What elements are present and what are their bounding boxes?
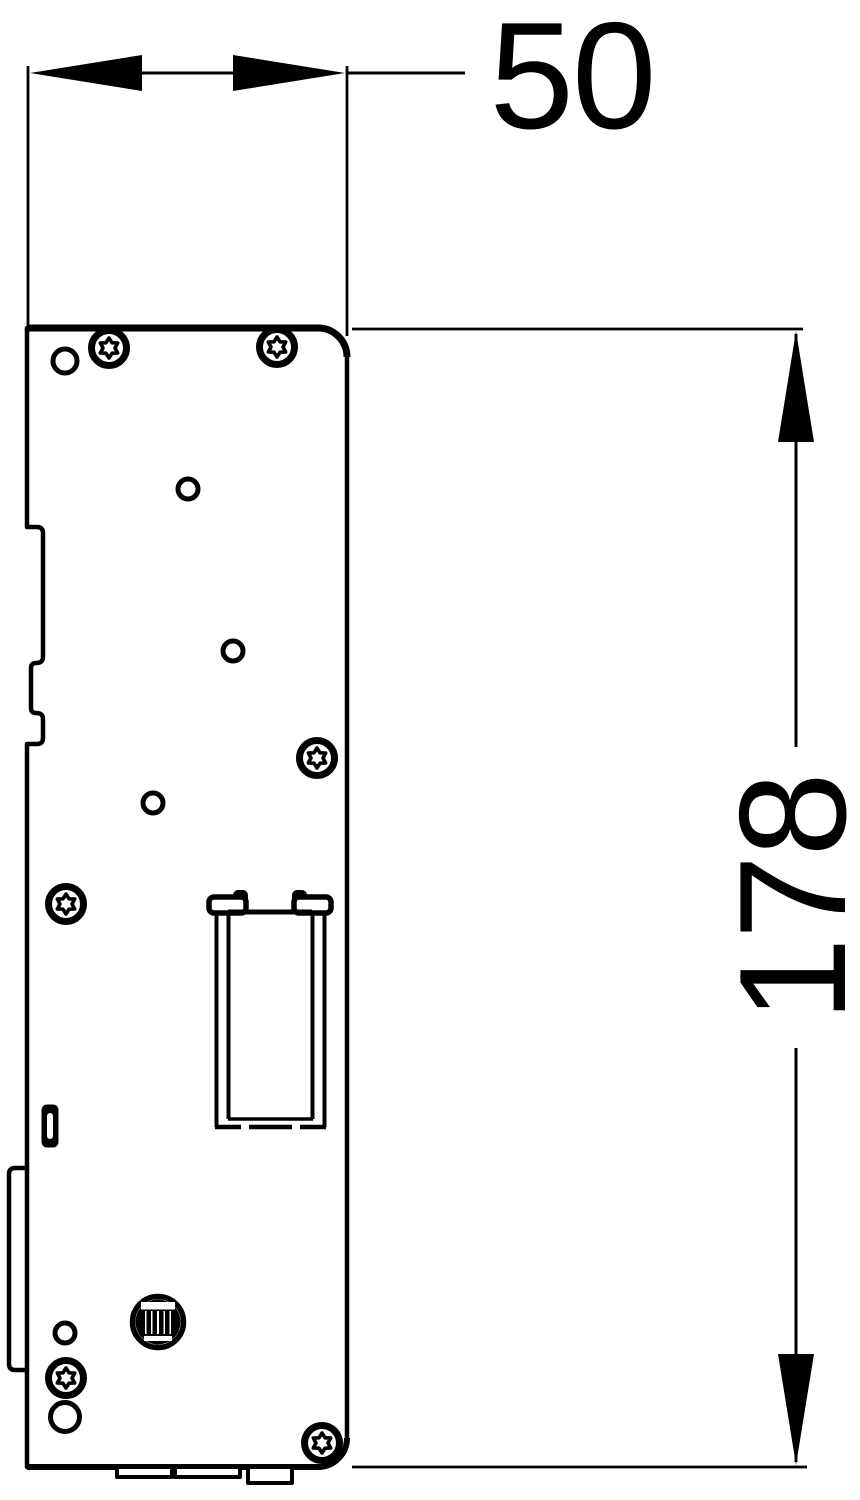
width-arrow-left xyxy=(30,55,142,91)
height-arrow-top xyxy=(778,331,814,442)
hole-lower-middle xyxy=(143,793,163,813)
bottom-tab-3 xyxy=(248,1467,292,1483)
cable-slot xyxy=(42,1105,59,1148)
hole-top-left xyxy=(53,349,77,373)
hole-bottom-small xyxy=(55,1323,75,1343)
hole-bottom-large xyxy=(51,1403,80,1432)
height-arrow-bottom xyxy=(778,1354,814,1465)
width-arrow-right xyxy=(233,55,345,91)
height-dimension-label: 178 xyxy=(717,774,860,1022)
round-connector xyxy=(133,1297,184,1348)
technical-drawing-page: 50 178 xyxy=(0,0,860,1500)
hole-upper-middle xyxy=(178,479,198,499)
technical-drawing xyxy=(0,0,860,1500)
torx-screw-middle-right xyxy=(300,741,335,776)
torx-screw-bottom-left xyxy=(49,1361,84,1396)
torx-screw-top-right xyxy=(260,330,295,365)
bottom-tab-2 xyxy=(175,1467,240,1477)
bottom-tab-1 xyxy=(117,1467,172,1477)
side-bracket xyxy=(9,1168,27,1370)
torx-screw-top-left xyxy=(92,331,127,366)
torx-screw-middle-left xyxy=(49,887,84,922)
width-dimension-label: 50 xyxy=(489,0,654,152)
torx-screw-bottom-right xyxy=(305,1426,340,1461)
width-dimension xyxy=(28,55,465,336)
hole-middle xyxy=(223,641,243,661)
bottom-tabs xyxy=(117,1467,292,1483)
